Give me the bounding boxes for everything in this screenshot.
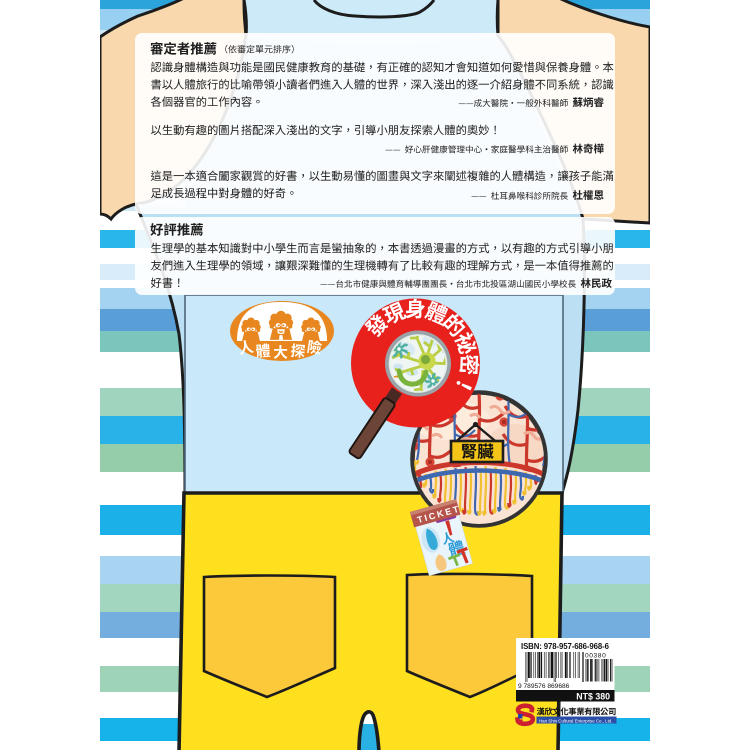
svg-text:ISBN: 978-957-686-968-6: ISBN: 978-957-686-968-6 <box>521 642 610 651</box>
svg-text:9 789576 869686: 9 789576 869686 <box>518 683 570 690</box>
svg-text:00380: 00380 <box>585 653 606 660</box>
svg-text:Han Shin Cultural Enterprise C: Han Shin Cultural Enterprise Co., Ltd. <box>539 719 612 724</box>
svg-text:NT$ 380: NT$ 380 <box>576 692 610 702</box>
